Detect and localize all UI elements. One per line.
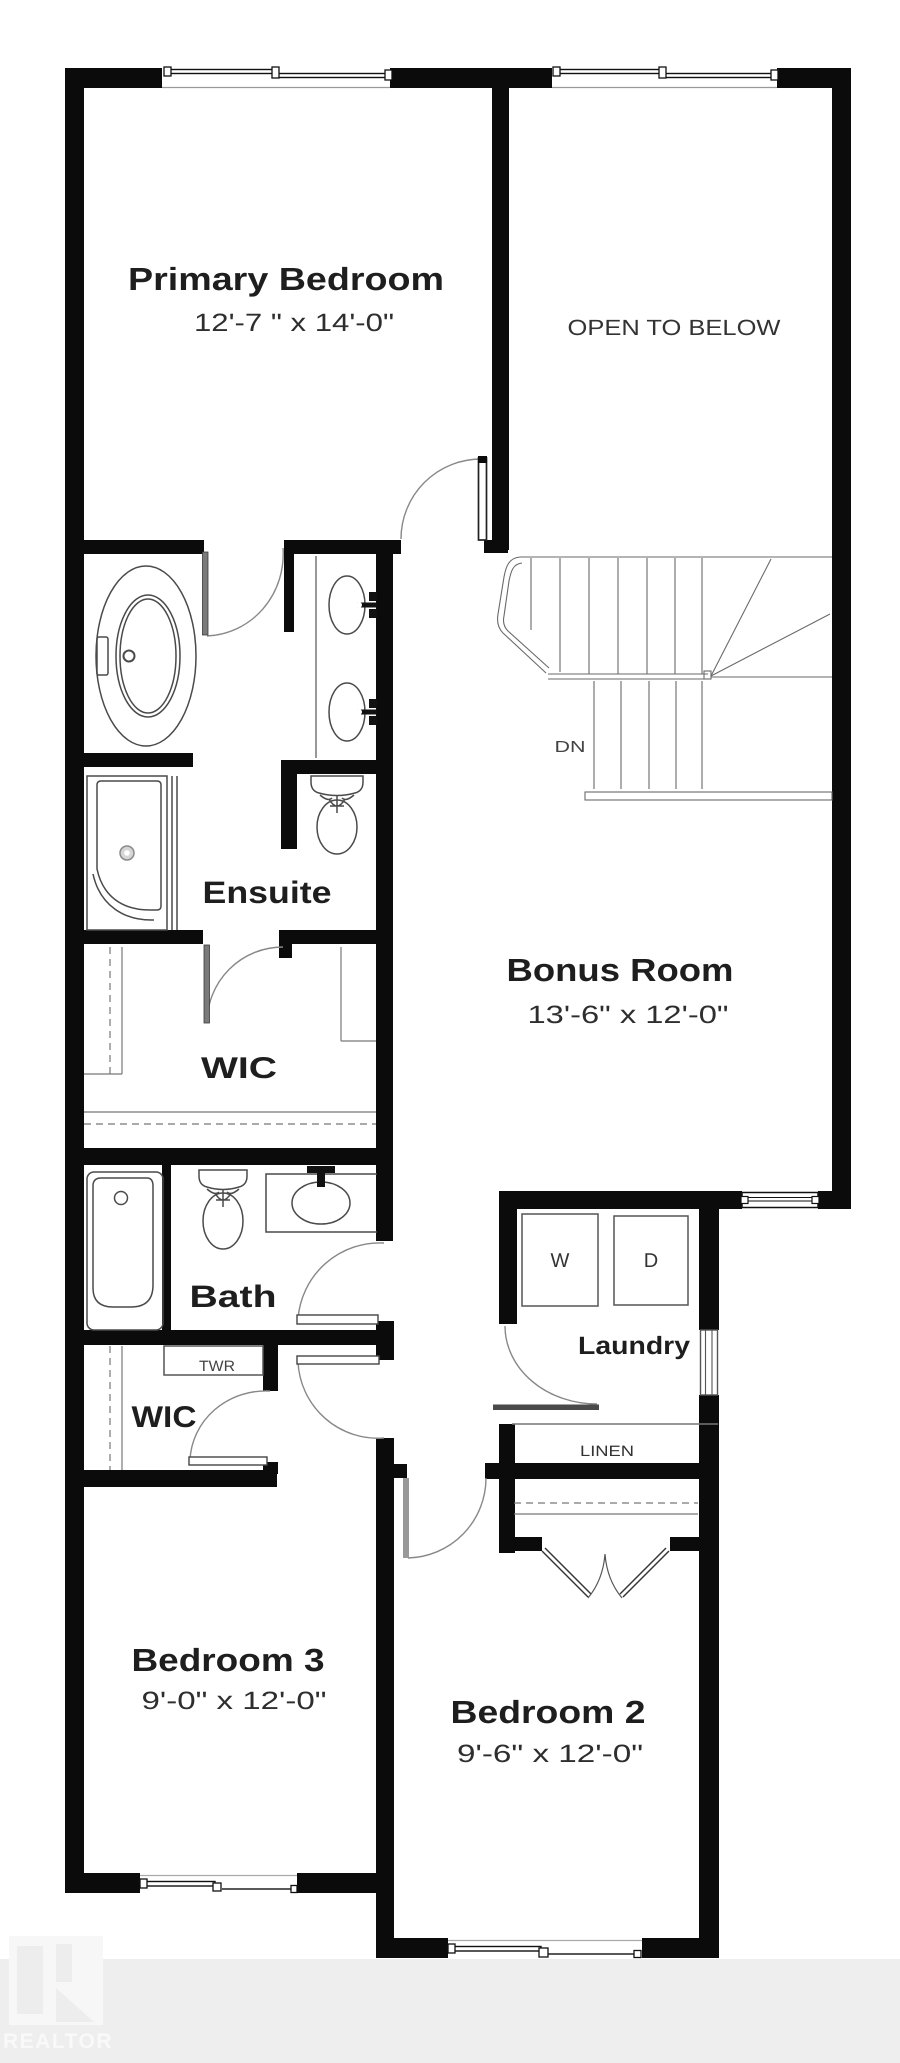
svg-text:Primary Bedroom: Primary Bedroom — [128, 261, 444, 297]
svg-text:Bedroom 2: Bedroom 2 — [451, 1694, 646, 1730]
svg-text:9'-6" x 12'-0": 9'-6" x 12'-0" — [457, 1740, 643, 1768]
svg-text:Bath: Bath — [190, 1279, 277, 1314]
svg-text:Bonus Room: Bonus Room — [507, 952, 734, 988]
svg-text:9'-0" x 12'-0": 9'-0" x 12'-0" — [142, 1687, 327, 1715]
svg-text:12'-7 " x 14'-0": 12'-7 " x 14'-0" — [194, 309, 394, 337]
svg-text:LINEN: LINEN — [580, 1443, 634, 1460]
svg-text:WIC: WIC — [132, 1401, 197, 1434]
svg-text:REALTOR: REALTOR — [3, 2030, 113, 2053]
svg-text:DN: DN — [555, 739, 586, 756]
svg-text:WIC: WIC — [201, 1052, 277, 1085]
svg-text:Laundry: Laundry — [578, 1332, 690, 1360]
svg-text:OPEN TO BELOW: OPEN TO BELOW — [568, 315, 781, 340]
svg-text:13'-6" x 12'-0": 13'-6" x 12'-0" — [528, 1001, 729, 1029]
svg-text:TWR: TWR — [199, 1358, 235, 1375]
svg-text:Ensuite: Ensuite — [203, 875, 332, 910]
svg-text:D: D — [644, 1250, 658, 1272]
svg-text:W: W — [551, 1250, 570, 1272]
svg-text:Bedroom 3: Bedroom 3 — [132, 1642, 325, 1678]
